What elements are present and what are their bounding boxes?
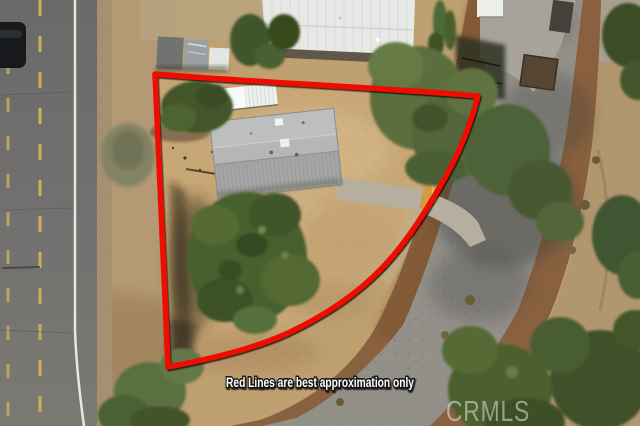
left-road <box>0 0 112 426</box>
driveway-wall <box>549 0 574 33</box>
pole-shadow <box>2 267 40 268</box>
aerial-photo: Red Lines are best approximation only CR… <box>0 0 640 426</box>
aerial-photo-canvas: Red Lines are best approximation only CR… <box>0 0 640 426</box>
roof-vent <box>280 138 290 147</box>
crmls-watermark: CRMLS <box>446 396 530 426</box>
parked-car <box>0 22 26 68</box>
disclaimer-text: Red Lines are best approximation only <box>226 374 414 390</box>
sage-bush-left-strip <box>101 123 155 187</box>
white-canopy-roof <box>477 0 503 17</box>
roof-vent <box>275 118 284 126</box>
driveway-entry <box>520 55 558 90</box>
